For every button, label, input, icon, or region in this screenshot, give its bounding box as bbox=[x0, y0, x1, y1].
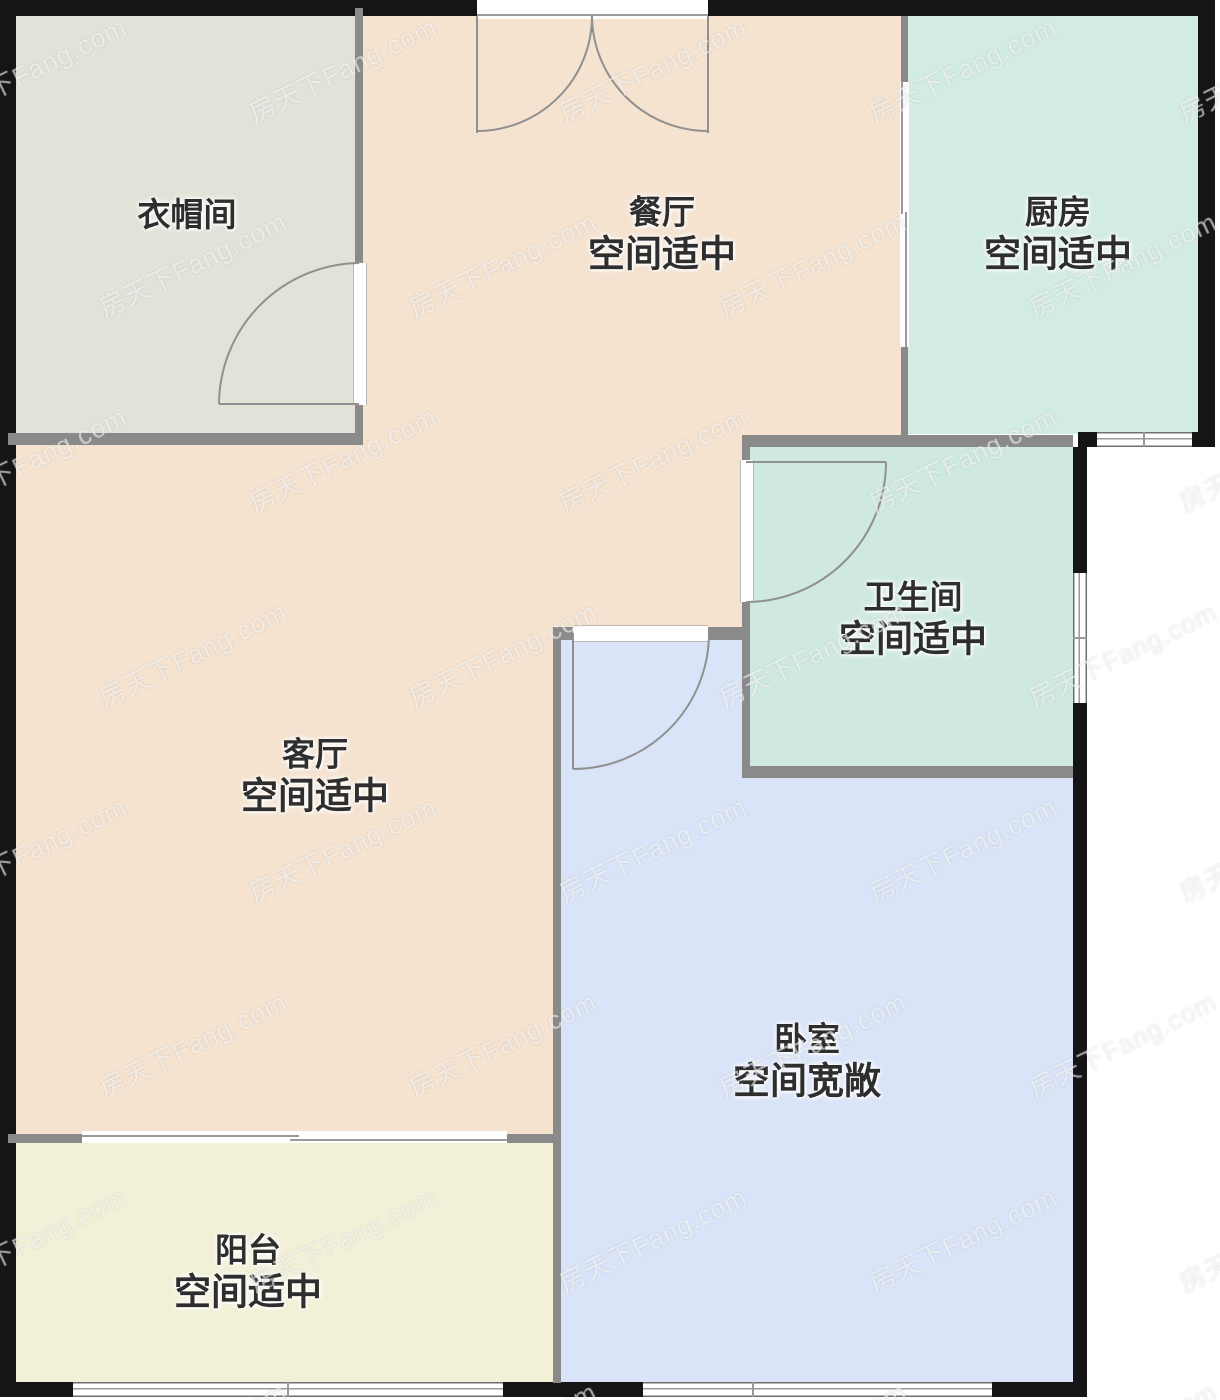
wall bbox=[503, 1382, 643, 1397]
wall bbox=[1192, 432, 1215, 447]
wall bbox=[553, 627, 561, 1383]
floor-plan: 衣帽间 餐厅 空间适中 厨房 空间适中 卫生间 空间适中 客厅 空间适中 卧室 … bbox=[0, 0, 1220, 1400]
window-divider bbox=[752, 1382, 754, 1397]
room-label-bedroom: 卧室 空间宽敞 bbox=[733, 1020, 881, 1103]
room-subtitle: 空间适中 bbox=[241, 775, 389, 818]
room-label-balcony: 阳台 空间适中 bbox=[174, 1231, 322, 1314]
entry-threshold-line bbox=[477, 14, 708, 16]
wall bbox=[8, 1134, 82, 1143]
room-subtitle: 空间宽敞 bbox=[733, 1060, 881, 1103]
room-label-bathroom: 卫生间 空间适中 bbox=[839, 578, 987, 661]
wall bbox=[901, 16, 908, 82]
wall bbox=[708, 0, 1215, 16]
wall bbox=[355, 8, 363, 263]
wall bbox=[0, 1382, 73, 1397]
room-subtitle: 空间适中 bbox=[174, 1271, 322, 1314]
wall bbox=[0, 0, 16, 1397]
watermark: 房天下Fang.com bbox=[1172, 1177, 1220, 1300]
wall bbox=[742, 435, 1073, 447]
room-name: 卧室 bbox=[733, 1020, 881, 1060]
door-opening-bathroom bbox=[740, 460, 754, 602]
wall bbox=[992, 1382, 1087, 1397]
wall bbox=[1078, 432, 1098, 447]
room-subtitle: 空间适中 bbox=[588, 233, 736, 276]
sliding-door-panel bbox=[901, 82, 903, 214]
wall bbox=[742, 766, 1073, 778]
door-opening-entry bbox=[477, 0, 708, 19]
room-name: 阳台 bbox=[174, 1231, 322, 1271]
wall bbox=[507, 1134, 557, 1143]
room-label-kitchen: 厨房 空间适中 bbox=[984, 193, 1132, 276]
wall bbox=[0, 0, 477, 16]
wall bbox=[8, 433, 363, 445]
room-name: 餐厅 bbox=[588, 193, 736, 233]
sliding-door-panel bbox=[290, 1139, 507, 1141]
room-label-cloakroom: 衣帽间 bbox=[138, 195, 237, 235]
door-opening-bedroom bbox=[573, 625, 708, 642]
door-opening-cloakroom bbox=[353, 263, 367, 405]
window-divider bbox=[287, 1382, 289, 1397]
wall bbox=[742, 602, 750, 774]
sliding-door-panel bbox=[82, 1135, 299, 1137]
window-divider bbox=[1143, 432, 1145, 447]
sliding-door-balcony bbox=[82, 1131, 507, 1143]
sliding-door-panel bbox=[905, 212, 907, 347]
room-name: 厨房 bbox=[984, 193, 1132, 233]
window bbox=[643, 1382, 992, 1397]
wall bbox=[901, 347, 908, 435]
watermark: 房天下Fang.com bbox=[1172, 787, 1220, 910]
room-label-dining: 餐厅 空间适中 bbox=[588, 193, 736, 276]
window-divider bbox=[1073, 637, 1087, 639]
room-name: 卫生间 bbox=[839, 578, 987, 618]
room-subtitle: 空间适中 bbox=[839, 618, 987, 661]
wall bbox=[1073, 447, 1087, 573]
room-name: 客厅 bbox=[241, 735, 389, 775]
room-name: 衣帽间 bbox=[138, 195, 237, 235]
wall bbox=[1073, 703, 1087, 1397]
room-subtitle: 空间适中 bbox=[984, 233, 1132, 276]
wall bbox=[708, 627, 743, 640]
room-label-living: 客厅 空间适中 bbox=[241, 735, 389, 818]
wall bbox=[1198, 0, 1215, 447]
